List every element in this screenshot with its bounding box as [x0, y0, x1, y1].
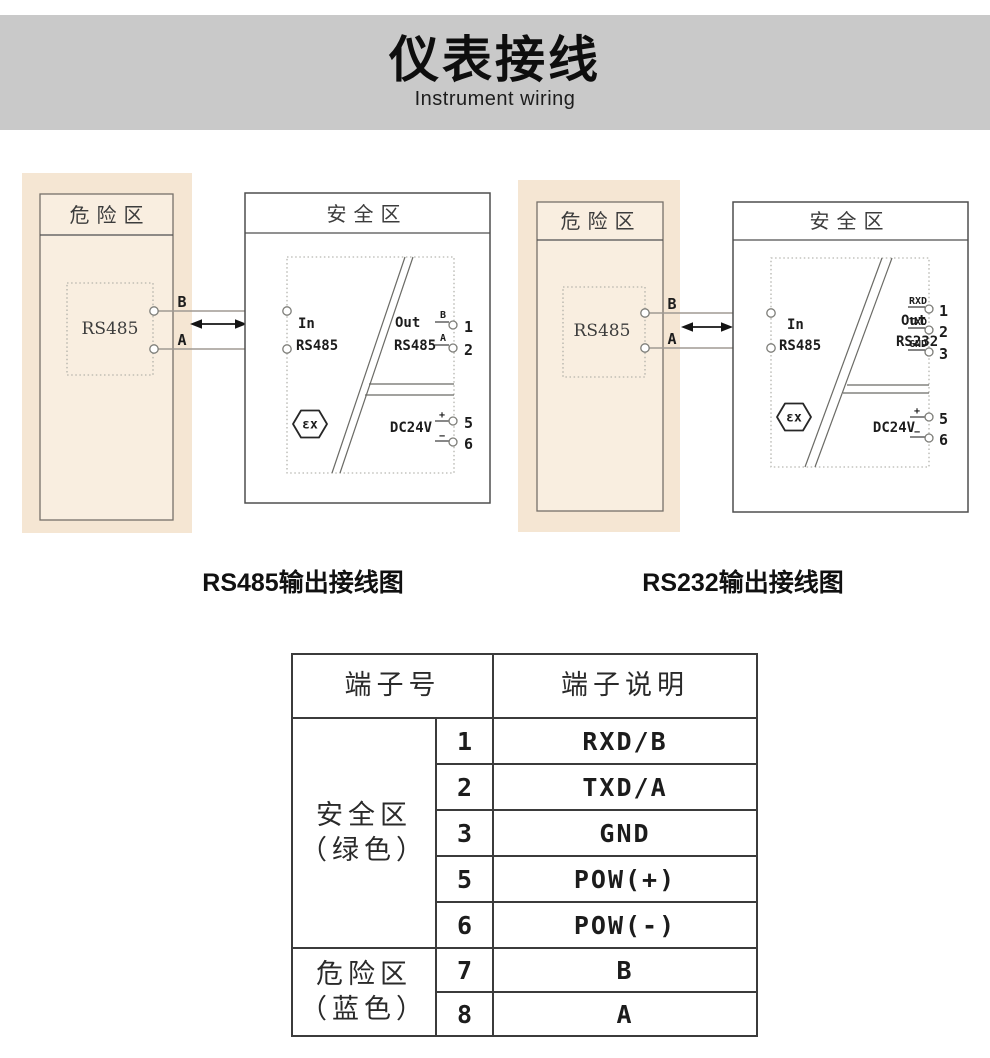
terminal-circle — [150, 345, 158, 353]
safe-zone-title: 安全区 — [810, 209, 891, 233]
header-banner: 仪表接线 Instrument wiring — [0, 15, 990, 130]
terminal-circle — [283, 345, 291, 353]
hazard-zone-box: 危险区 — [537, 202, 663, 511]
terminal-circle — [150, 307, 158, 315]
svg-text:RXD: RXD — [909, 296, 927, 307]
terminal-desc-cell: GND — [493, 810, 757, 856]
power-label: DC24V — [390, 420, 433, 436]
output-label-line2: RS485 — [394, 338, 436, 354]
rs232-wiring-diagram: 危险区 RS485 B A 7 8 安全区 — [510, 170, 990, 540]
zone-cell-safe: 安全区 （绿色） — [292, 718, 436, 948]
terminal-circle — [925, 413, 933, 421]
bidirectional-arrow-icon — [190, 319, 247, 328]
terminal-desc-cell: POW(-) — [493, 902, 757, 948]
terminal-no-cell: 8 — [436, 992, 493, 1036]
terminal-desc-cell: TXD/A — [493, 764, 757, 810]
terminal-no-cell: 3 — [436, 810, 493, 856]
rs485-diagram-caption: RS485输出接线图 — [198, 563, 408, 599]
input-label-line2: RS485 — [779, 338, 821, 354]
svg-text:3: 3 — [939, 345, 948, 363]
svg-text:1: 1 — [464, 318, 473, 336]
svg-text:εx: εx — [786, 411, 802, 426]
terminal-table: 端子号 端子说明 安全区 （绿色） 1 RXD/B 2 TXD/A 3 GND … — [291, 653, 758, 1037]
svg-text:A: A — [440, 333, 446, 344]
terminal-no-cell: 1 — [436, 718, 493, 764]
wire-label-b: B — [177, 293, 186, 311]
header-terminal-desc: 端子说明 — [493, 654, 757, 718]
svg-text:5: 5 — [464, 414, 473, 432]
svg-text:6: 6 — [464, 435, 473, 453]
terminal-no-cell: 6 — [436, 902, 493, 948]
terminal-circle — [925, 326, 933, 334]
svg-text:+: + — [439, 410, 445, 421]
terminal-circle — [641, 309, 649, 317]
terminal-desc-cell: A — [493, 992, 757, 1036]
hazard-zone-title: 危险区 — [70, 203, 151, 227]
bidirectional-arrow-icon — [681, 322, 733, 331]
svg-text:−: − — [914, 427, 920, 438]
svg-text:1: 1 — [939, 302, 948, 320]
svg-text:+: + — [914, 406, 920, 417]
terminal-circle — [449, 321, 457, 329]
svg-text:GND: GND — [909, 339, 927, 350]
wire-label-b: B — [667, 295, 676, 313]
table-row: 安全区 （绿色） 1 RXD/B — [292, 718, 757, 764]
zone-cell-hazard: 危险区 （蓝色） — [292, 948, 436, 1036]
svg-text:B: B — [440, 310, 446, 321]
rs232-diagram-caption: RS232输出接线图 — [638, 563, 848, 599]
terminal-desc-cell: B — [493, 948, 757, 992]
output-label-line1: Out — [395, 315, 420, 331]
terminal-circle — [925, 305, 933, 313]
rs485-wiring-diagram: 危险区 RS485 B A 7 8 安全区 — [15, 170, 495, 540]
terminal-circle — [925, 434, 933, 442]
svg-text:εx: εx — [302, 418, 318, 433]
terminal-circle — [641, 344, 649, 352]
safe-zone-box: 安全区 — [733, 202, 968, 512]
svg-text:5: 5 — [939, 410, 948, 428]
terminal-circle — [925, 348, 933, 356]
table-row: 危险区 （蓝色） 7 B — [292, 948, 757, 992]
svg-text:6: 6 — [939, 431, 948, 449]
wire-label-a: A — [667, 330, 676, 348]
table-header-row: 端子号 端子说明 — [292, 654, 757, 718]
svg-text:2: 2 — [464, 341, 473, 359]
terminal-circle — [449, 344, 457, 352]
svg-text:TXD: TXD — [909, 317, 927, 328]
power-label: DC24V — [873, 420, 916, 436]
hazard-zone-title: 危险区 — [561, 209, 642, 233]
terminal-no-cell: 2 — [436, 764, 493, 810]
terminal-no-cell: 7 — [436, 948, 493, 992]
terminal-desc-cell: RXD/B — [493, 718, 757, 764]
terminal-table-wrapper: 端子号 端子说明 安全区 （绿色） 1 RXD/B 2 TXD/A 3 GND … — [291, 653, 758, 1037]
input-label-line2: RS485 — [296, 338, 338, 354]
hazard-device-label: RS485 — [82, 319, 139, 339]
terminal-circle — [449, 417, 457, 425]
terminal-circle — [283, 307, 291, 315]
header-terminal-no: 端子号 — [292, 654, 493, 718]
hazard-device-label: RS485 — [574, 321, 631, 341]
terminal-circle — [449, 438, 457, 446]
svg-text:2: 2 — [939, 323, 948, 341]
terminal-no-cell: 5 — [436, 856, 493, 902]
terminal-desc-cell: POW(+) — [493, 856, 757, 902]
safe-zone-title: 安全区 — [327, 202, 408, 226]
page-subtitle: Instrument wiring — [415, 88, 576, 111]
page-title: 仪表接线 — [389, 34, 601, 87]
terminal-circle — [767, 344, 775, 352]
input-label-line1: In — [787, 317, 804, 333]
svg-text:−: − — [439, 431, 445, 442]
terminal-circle — [767, 309, 775, 317]
input-label-line1: In — [298, 316, 315, 332]
wire-label-a: A — [177, 331, 186, 349]
instrument-wiring-page: 仪表接线 Instrument wiring 危险区 RS485 B A 7 8 — [0, 0, 990, 1058]
